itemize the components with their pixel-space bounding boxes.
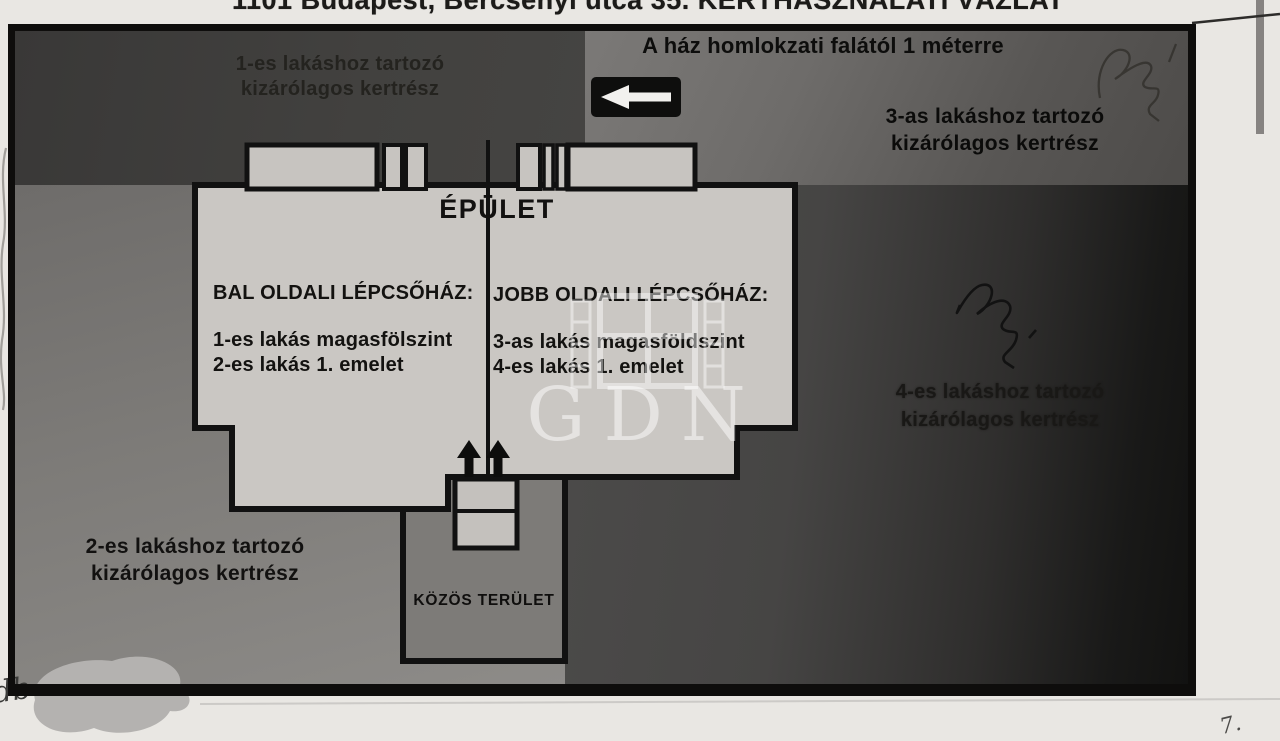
scan-streak <box>1256 0 1264 134</box>
scan-line-bottom <box>200 699 1280 704</box>
scan-line-top-right <box>1192 14 1280 23</box>
signature-top-right <box>1099 44 1176 121</box>
signature-mid-right <box>957 285 1036 368</box>
handwriting-bottom-left: db <box>0 671 33 711</box>
scanned-garden-use-sketch: 1101 Budapest, Bercsényi utca 35. KERTHA… <box>0 0 1280 741</box>
overlay-layer: GDN db 7. <box>0 0 1280 741</box>
handwriting-bottom-right: 7. <box>1217 711 1243 740</box>
scan-edge-scribble <box>1 148 6 410</box>
gdn-watermark-text: GDN <box>526 372 763 458</box>
redaction-blob <box>34 657 190 733</box>
